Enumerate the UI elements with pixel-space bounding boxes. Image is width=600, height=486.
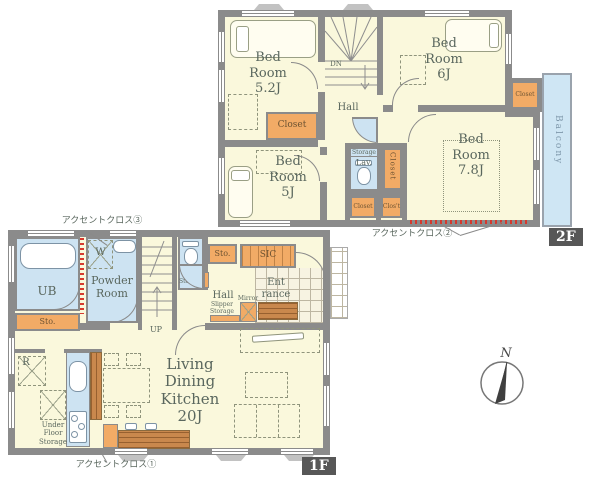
- entrance-bench: [258, 302, 298, 320]
- window: [323, 343, 330, 375]
- window: [8, 338, 15, 374]
- porch: [330, 247, 348, 319]
- stairs-down-label: DN: [327, 60, 345, 68]
- compass-icon: [478, 358, 530, 410]
- vent-icon: [216, 455, 246, 461]
- slipper-storage-label: Slipper Storage: [204, 301, 240, 315]
- window: [8, 392, 15, 428]
- wall: [418, 105, 512, 112]
- slipper-storage: [210, 315, 240, 322]
- wall: [383, 105, 393, 112]
- lav-2f-label: Lav.: [350, 158, 378, 168]
- bedroom-78j-label: Bed Room 7.8J: [440, 132, 502, 179]
- window: [425, 10, 469, 17]
- dining-table-icon: [103, 368, 150, 403]
- under-floor-storage-icon: [40, 390, 66, 420]
- balcony-label: Balcony: [552, 115, 563, 165]
- storage-strip: [204, 272, 209, 288]
- floor-1-badge: 1F: [302, 457, 336, 475]
- closet-6j-label: Closet: [509, 91, 541, 98]
- window: [8, 246, 15, 282]
- wall: [320, 182, 327, 220]
- sofa-seat-divider: [256, 405, 257, 437]
- chair-icon: [104, 405, 119, 418]
- storage-under-bath-label: Sto.: [15, 317, 80, 327]
- accent-label-3: アクセントクロス③: [52, 216, 152, 227]
- window: [533, 128, 540, 160]
- kitchen-sink-icon: [69, 361, 87, 392]
- window: [218, 32, 225, 62]
- toilet-bowl-icon: [357, 167, 371, 185]
- refrigerator-label: R: [20, 357, 32, 369]
- window: [242, 10, 294, 17]
- chair-icon: [126, 405, 141, 418]
- wall: [402, 148, 407, 220]
- window: [533, 170, 540, 204]
- under-floor-storage-label: Under Floor Storage: [27, 421, 79, 446]
- accent-wall-1: [103, 424, 118, 448]
- kitchen-bar-counter: [90, 352, 102, 420]
- wall: [172, 323, 177, 330]
- bedroom-52j-label: Bed Room 5.2J: [233, 50, 303, 97]
- accent-label-2: アクセントクロス②: [362, 229, 462, 240]
- wall: [318, 17, 325, 62]
- counter-table: [118, 430, 190, 449]
- pillow-icon: [236, 26, 249, 52]
- accent-label-1: アクセントクロス①: [66, 460, 166, 471]
- desk-icon: [228, 94, 258, 130]
- storage-hall-label: Sto.: [208, 249, 237, 259]
- wall: [225, 140, 318, 147]
- wall: [15, 349, 45, 353]
- floor-patch: [505, 117, 513, 220]
- ldk-label: Living Dining Kitchen 20J: [156, 356, 224, 425]
- wall: [138, 323, 142, 330]
- coffee-table-icon: [245, 372, 288, 398]
- closet-78j-label: Clos't: [382, 203, 401, 210]
- pillow-icon: [489, 23, 499, 48]
- closet-52j-label: Closet: [268, 120, 316, 131]
- closet-mid-2f-label: Closet: [388, 152, 396, 180]
- wall: [377, 17, 383, 95]
- vent-icon: [254, 4, 284, 10]
- hall-2f-label: Hall: [331, 102, 365, 114]
- window: [240, 220, 290, 227]
- window: [110, 230, 136, 237]
- accent-wall-2: [410, 220, 530, 224]
- chair-icon: [104, 353, 119, 366]
- burner-icon: [78, 423, 85, 430]
- closet-5j-label: Closet: [351, 203, 375, 210]
- stairs-down-2f: [325, 17, 377, 95]
- pillow-icon: [231, 170, 250, 181]
- shoe-closet-label: SIC: [240, 250, 296, 261]
- window: [281, 448, 313, 455]
- vent-icon: [343, 4, 373, 10]
- floor-plan: Balcony Closet Closet Storage Lav. Close…: [0, 0, 600, 486]
- window: [115, 448, 147, 455]
- wall: [320, 147, 327, 155]
- sofa-icon: [234, 404, 300, 438]
- window: [218, 70, 225, 102]
- accent-wall-3: [80, 238, 84, 314]
- stool-icon: [125, 423, 137, 430]
- mirror-icon: [240, 302, 257, 322]
- bedroom-6j-label: Bed Room 6J: [413, 36, 475, 83]
- sink-icon: [113, 240, 136, 253]
- bathtub-icon: [20, 243, 76, 269]
- window: [505, 34, 512, 64]
- wall: [172, 237, 177, 323]
- bedroom-5j-label: Bed Room 5J: [257, 154, 319, 201]
- window: [323, 386, 330, 426]
- window: [28, 230, 74, 237]
- chair-icon: [126, 353, 141, 366]
- sofa-seat-divider: [278, 405, 279, 437]
- stairs-up-1f: [142, 237, 172, 323]
- toilet-bowl-icon: [184, 248, 198, 265]
- wall: [318, 92, 325, 140]
- floor-2-badge: 2F: [549, 228, 583, 246]
- window: [212, 448, 248, 455]
- stairs-up-label: UP: [145, 325, 167, 335]
- toilet-tank-icon: [182, 241, 199, 247]
- window: [218, 158, 225, 194]
- washer-label: W: [88, 247, 113, 259]
